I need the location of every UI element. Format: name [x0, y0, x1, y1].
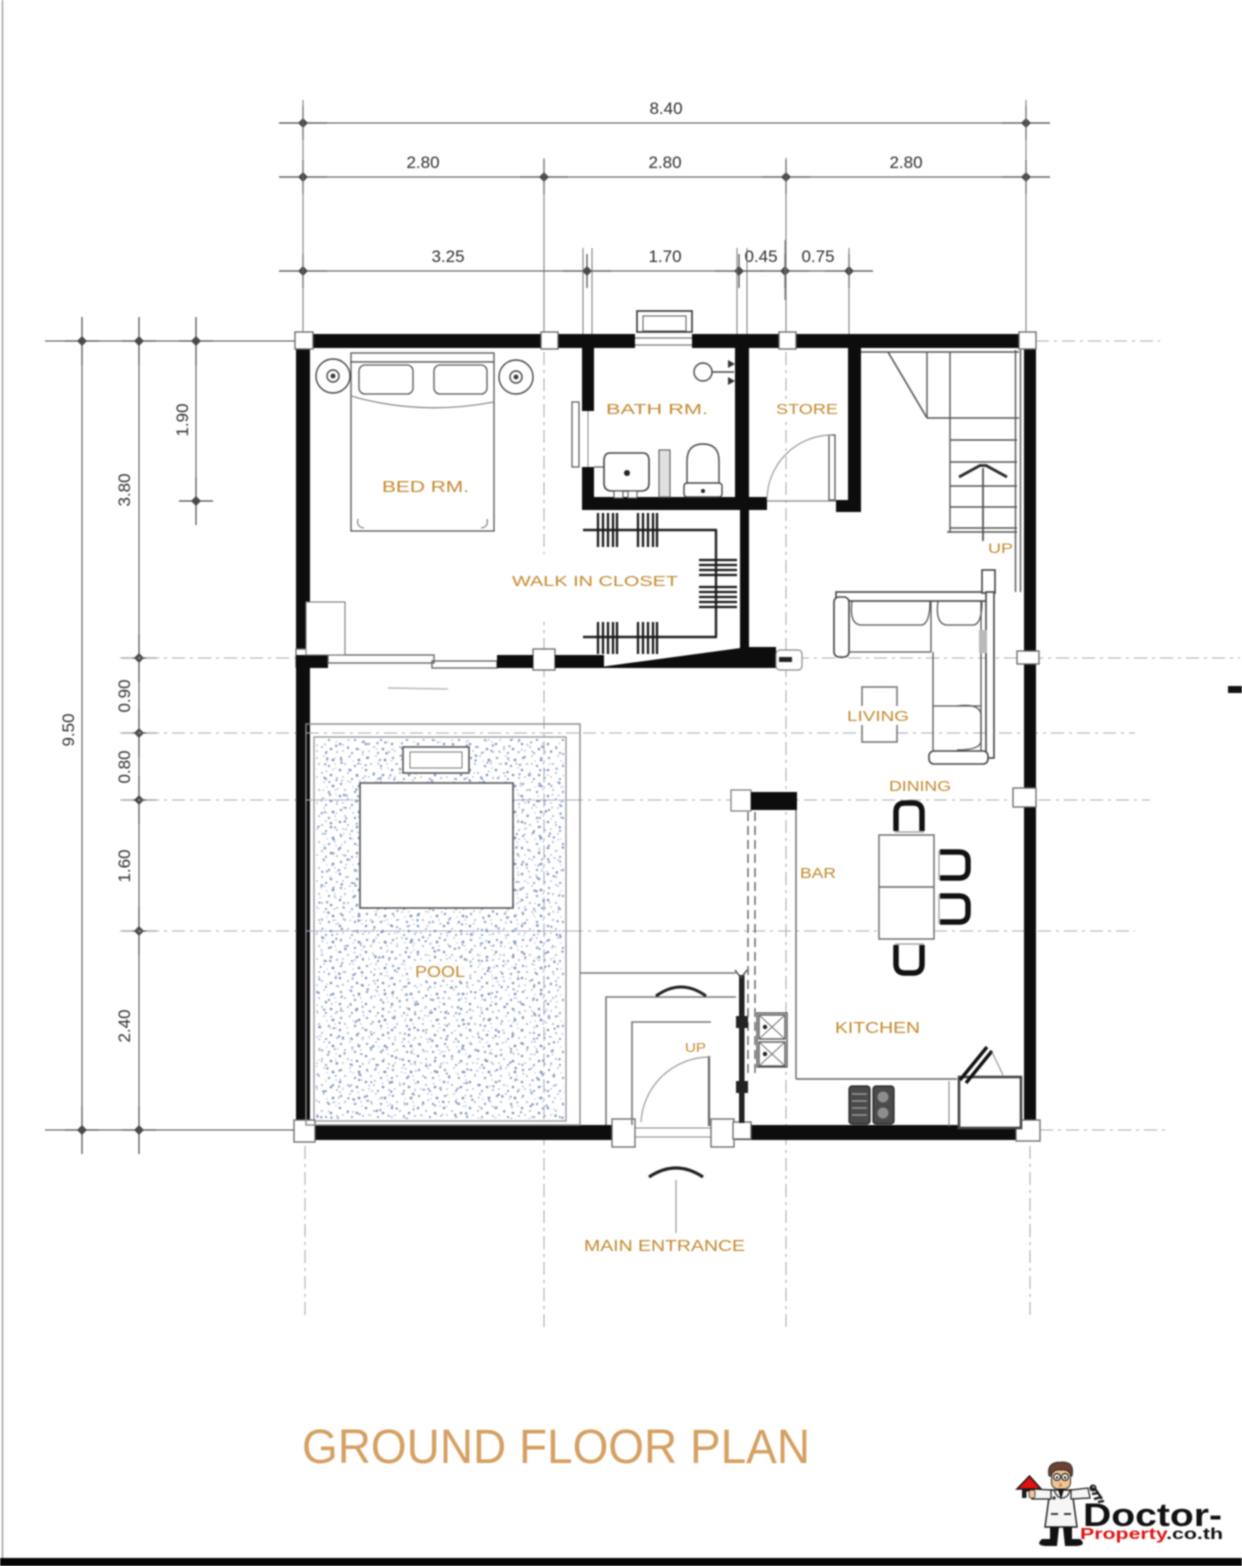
- svg-text:BED RM.: BED RM.: [382, 479, 469, 496]
- svg-text:3.80: 3.80: [115, 473, 134, 506]
- svg-text:1.90: 1.90: [173, 403, 192, 436]
- svg-text:0.80: 0.80: [115, 750, 134, 783]
- svg-text:WALK IN CLOSET: WALK IN CLOSET: [512, 574, 678, 590]
- svg-text:9.50: 9.50: [59, 713, 78, 746]
- svg-text:2.80: 2.80: [406, 153, 439, 172]
- svg-text:2.80: 2.80: [889, 153, 922, 172]
- svg-text:8.40: 8.40: [649, 99, 682, 118]
- svg-text:0.90: 0.90: [115, 679, 134, 712]
- svg-text:DINING: DINING: [889, 778, 951, 795]
- svg-text:LIVING: LIVING: [847, 708, 909, 725]
- svg-text:3.25: 3.25: [431, 247, 464, 266]
- svg-text:MAIN ENTRANCE: MAIN ENTRANCE: [584, 1238, 745, 1255]
- svg-text:1.60: 1.60: [115, 849, 134, 882]
- svg-text:KITCHEN: KITCHEN: [835, 1020, 920, 1037]
- svg-text:BATH RM.: BATH RM.: [606, 401, 708, 418]
- svg-text:0.45: 0.45: [744, 247, 777, 266]
- svg-text:STORE: STORE: [776, 401, 838, 418]
- svg-text:1.70: 1.70: [648, 247, 681, 266]
- svg-text:POOL: POOL: [415, 964, 465, 981]
- svg-text:UP: UP: [685, 1040, 706, 1055]
- svg-text:BAR: BAR: [800, 865, 836, 882]
- svg-text:UP: UP: [988, 541, 1013, 556]
- svg-text:GROUND FLOOR PLAN: GROUND FLOOR PLAN: [302, 1421, 810, 1474]
- svg-text:Property.co.th: Property.co.th: [1080, 1526, 1223, 1543]
- svg-text:0.75: 0.75: [801, 247, 834, 266]
- svg-text:2.40: 2.40: [115, 1009, 134, 1042]
- svg-text:2.80: 2.80: [648, 153, 681, 172]
